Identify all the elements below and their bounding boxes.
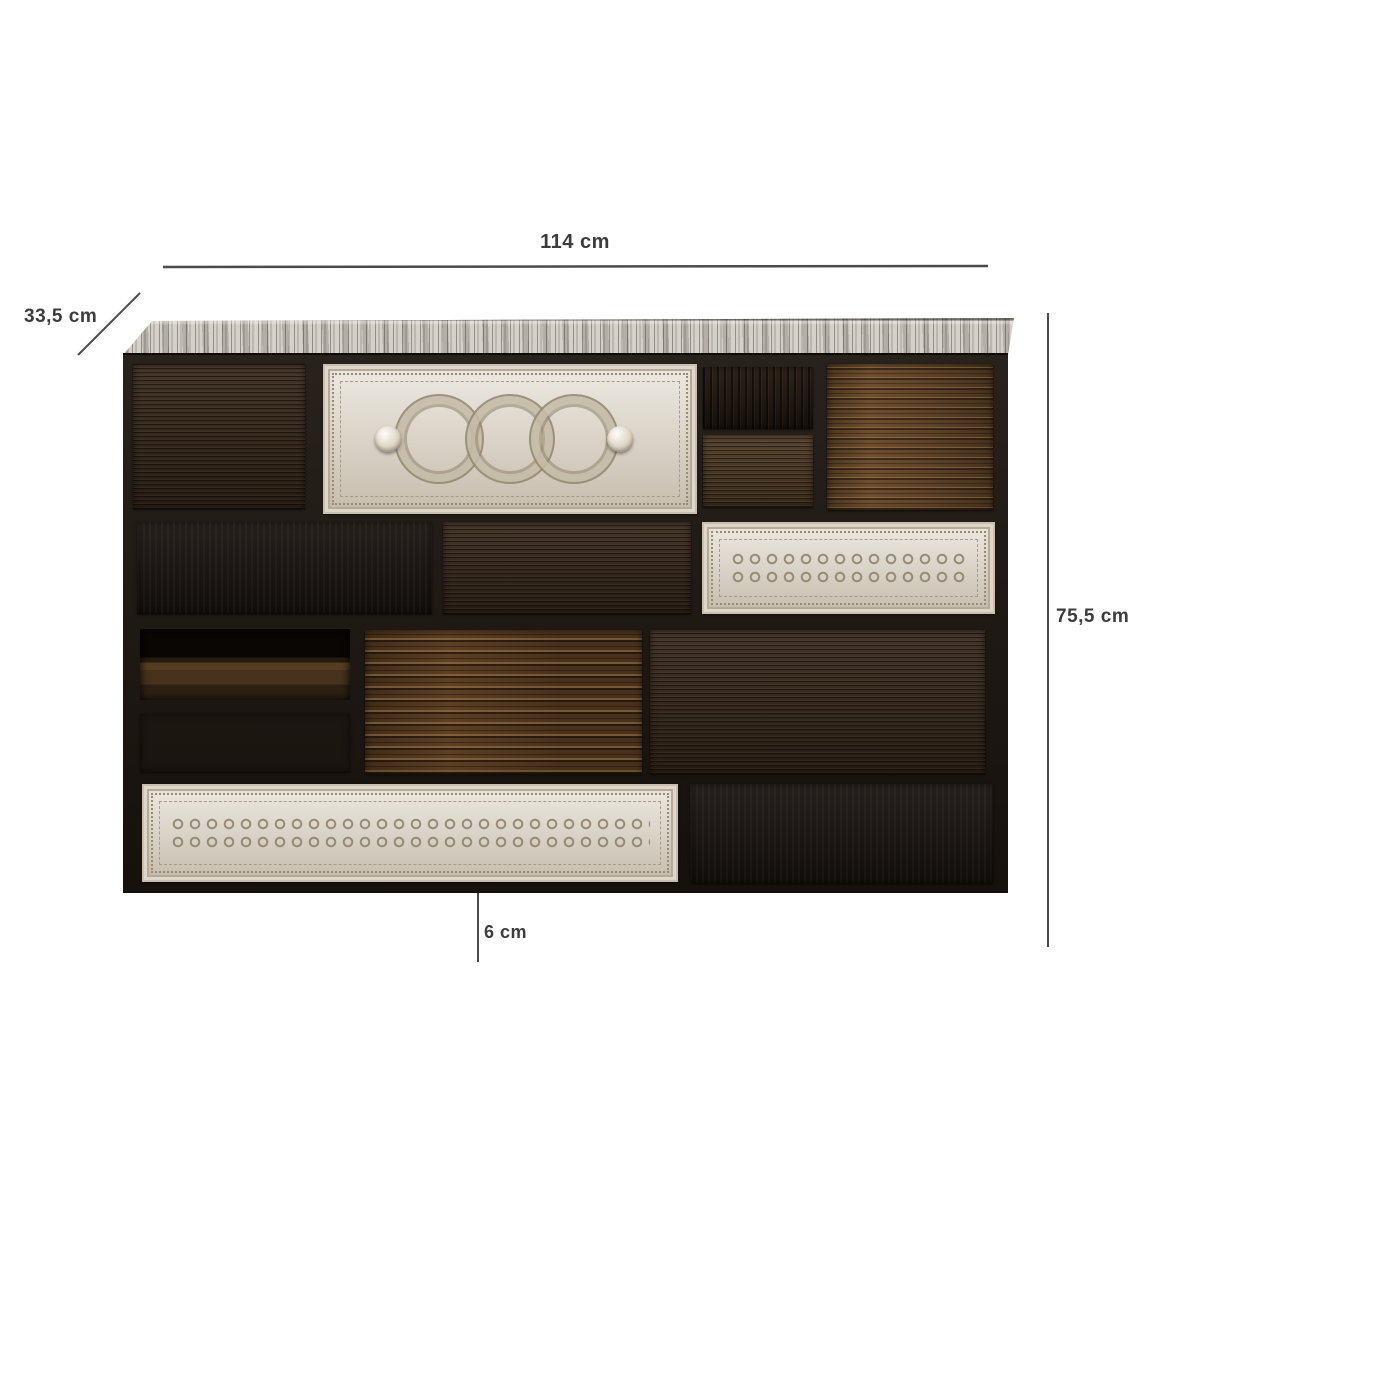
leg-height-dimension-label: 6 cm bbox=[484, 922, 527, 943]
width-dimension-label: 114 cm bbox=[495, 231, 655, 254]
product-dimension-diagram: 114 cm 33,5 cm 75,5 cm 6 cm bbox=[0, 0, 1400, 1400]
drawer-r3-right-dark bbox=[650, 630, 985, 774]
carved-medallion bbox=[394, 394, 484, 484]
drawer-r1-right-driftwood bbox=[827, 364, 993, 510]
height-dimension-label: 75,5 cm bbox=[1056, 606, 1129, 628]
open-slot-r3-slot-bottom bbox=[140, 714, 350, 772]
drawer-r4-white bbox=[142, 784, 678, 882]
drawer-r4-black bbox=[690, 784, 993, 883]
open-slot-r3-slot-top bbox=[140, 629, 350, 700]
depth-dimension-label: 33,5 cm bbox=[24, 306, 97, 328]
drawer-r1-center-white bbox=[323, 364, 697, 514]
drawer-r2-center-espresso bbox=[443, 522, 691, 614]
drawer-r1-left bbox=[133, 364, 305, 509]
drawer-r2-right-white bbox=[702, 522, 995, 614]
drawer-r2-left-black bbox=[137, 522, 432, 614]
drawer-r3-center-driftwood bbox=[365, 630, 642, 774]
width-dimension-line bbox=[163, 266, 988, 267]
carved-dome-knob bbox=[375, 426, 401, 452]
carved-ring-band bbox=[170, 815, 650, 851]
carved-ring-band bbox=[730, 550, 967, 586]
carved-medallion bbox=[465, 394, 555, 484]
carved-medallion bbox=[529, 394, 619, 484]
drawer-r1-small-top bbox=[703, 367, 813, 429]
drawer-r1-small-bottom bbox=[703, 435, 813, 507]
carved-dome-knob bbox=[607, 426, 633, 452]
cabinet-front-face bbox=[123, 353, 1008, 893]
cabinet-top-surface bbox=[123, 318, 1016, 355]
